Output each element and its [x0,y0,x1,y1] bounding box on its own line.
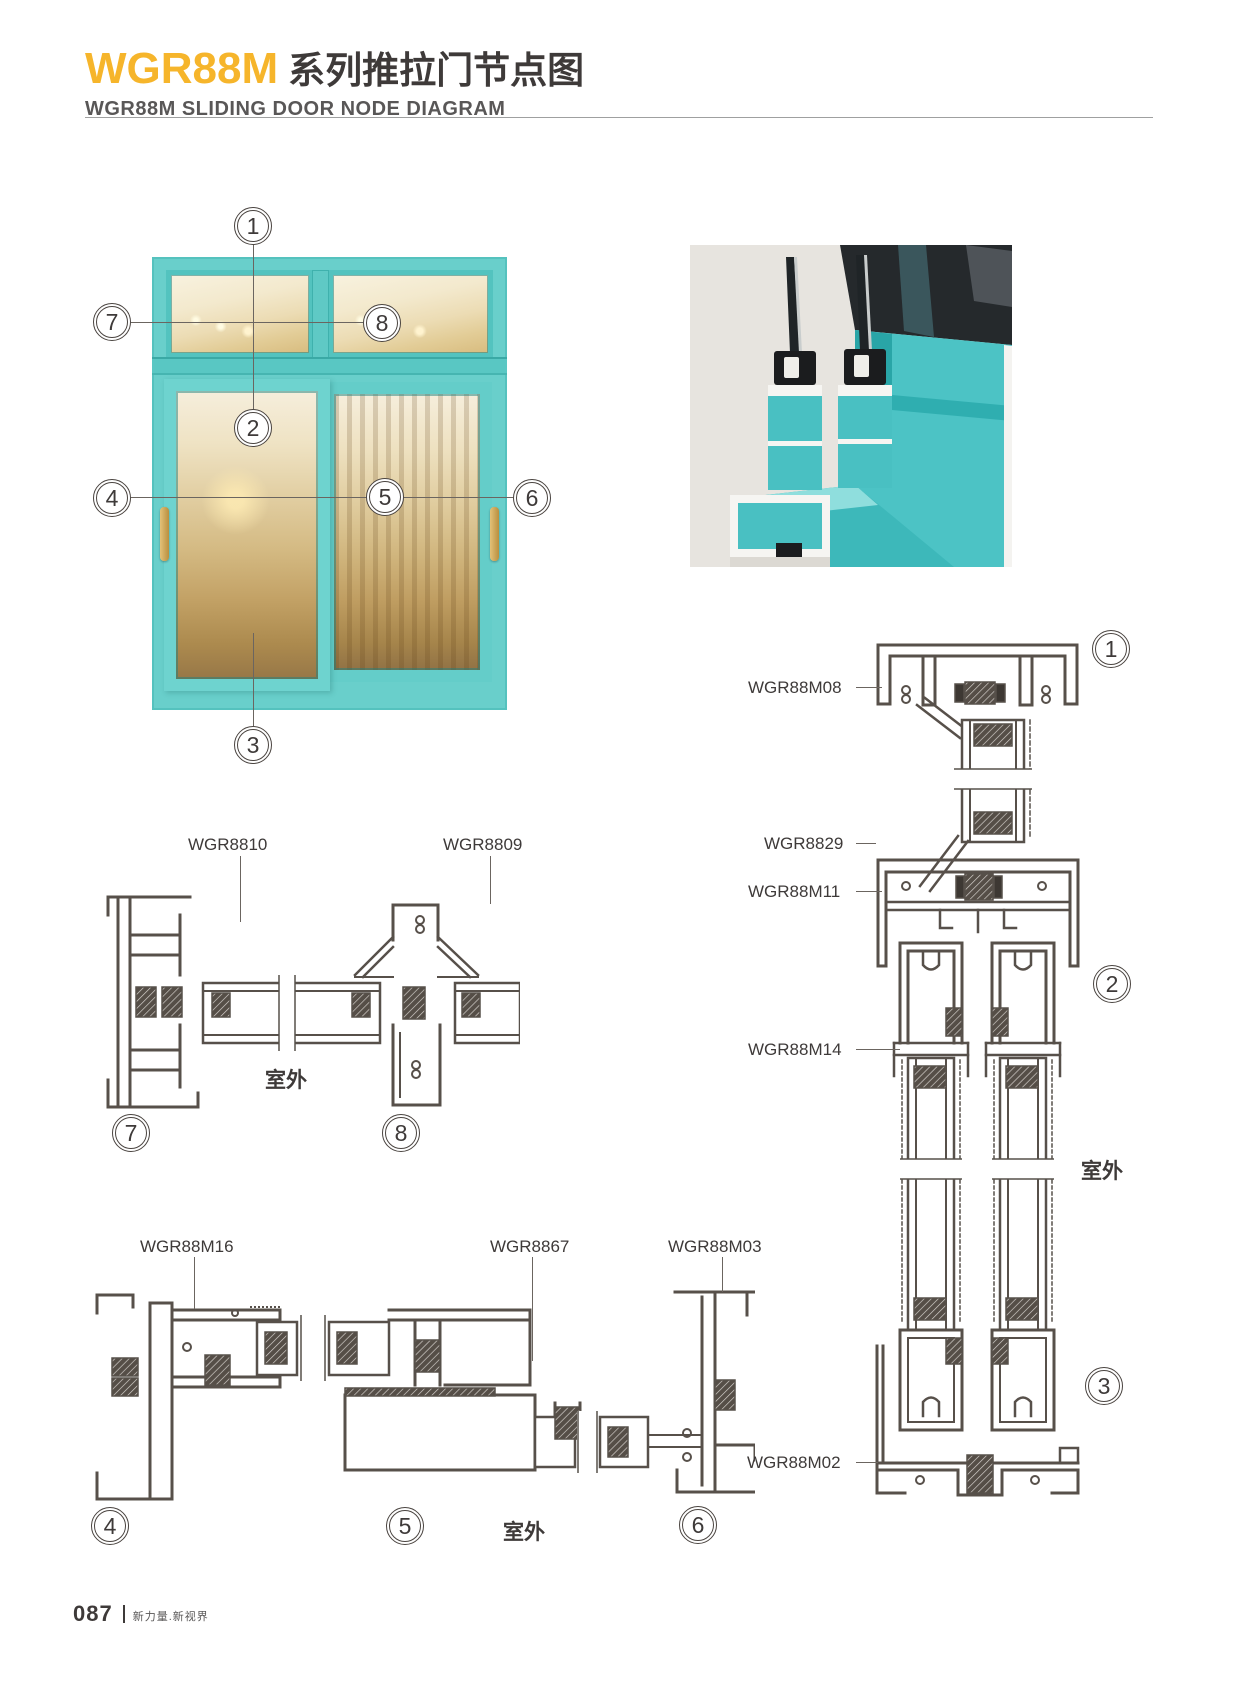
callout-3: 3 [234,726,272,764]
part-label: WGR88M02 [747,1454,841,1471]
section-drawing-4-5-6 [75,1285,755,1510]
leader-line [856,843,876,844]
leader-line [131,322,363,323]
callout-4-detail: 4 [91,1507,129,1545]
transom-pane-left [166,270,314,358]
callout-number: 4 [104,1513,117,1540]
callout-4: 4 [93,479,131,517]
leader-line [131,497,513,498]
leader-line [856,687,882,688]
leader-line [490,856,491,904]
part-label: WGR88M08 [748,679,842,696]
callout-number: 5 [379,484,392,511]
callout-5: 5 [366,478,404,516]
callout-8-detail: 8 [382,1114,420,1152]
callout-number: 3 [1098,1373,1111,1400]
section-drawing-7-8 [100,875,520,1165]
callout-number: 2 [247,415,260,442]
part-label: WGR88M11 [748,883,840,900]
page-footer: 087 新力量.新视界 [73,1601,209,1627]
sliding-door-illustration [152,257,507,710]
callout-8: 8 [363,304,401,342]
callout-3-detail: 3 [1085,1367,1123,1405]
callout-number: 1 [247,213,260,240]
footer-slogan: 新力量.新视界 [133,1605,209,1624]
part-label: WGR88M14 [748,1041,842,1058]
callout-number: 4 [106,485,119,512]
profile-3d-render [690,245,1012,567]
callout-number: 5 [399,1513,412,1540]
door-handle-left [160,507,169,561]
footer-divider [123,1605,125,1623]
leader-line [240,856,241,922]
callout-1-detail: 1 [1092,630,1130,668]
callout-1: 1 [234,207,272,245]
page-header: WGR88M系列推拉门节点图 WGR88M SLIDING DOOR NODE … [85,40,1155,121]
callout-number: 3 [247,732,260,759]
callout-6-detail: 6 [679,1506,717,1544]
callout-6: 6 [513,479,551,517]
part-label: WGR88M03 [668,1238,762,1255]
transom-pane-right [328,270,493,358]
callout-number: 8 [376,310,389,337]
page-number: 087 [73,1601,113,1627]
callout-5-detail: 5 [386,1507,424,1545]
callout-7-detail: 7 [112,1114,150,1152]
page-title: WGR88M系列推拉门节点图 [85,40,1155,94]
callout-number: 6 [526,485,539,512]
part-label: WGR8867 [490,1238,569,1255]
callout-7: 7 [93,303,131,341]
header-divider [85,117,1153,118]
leader-line [722,1257,723,1292]
transom-mullion [312,270,329,358]
catalog-page: WGR88M系列推拉门节点图 WGR88M SLIDING DOOR NODE … [0,0,1239,1681]
leader-line [532,1257,533,1361]
callout-number: 7 [125,1120,138,1147]
leader-line [856,891,882,892]
callout-number: 8 [395,1120,408,1147]
callout-number: 2 [1106,971,1119,998]
outdoor-label: 室外 [265,1064,307,1094]
title-chinese: 系列推拉门节点图 [288,50,584,91]
part-label: WGR8829 [764,835,843,852]
leader-line [194,1257,195,1309]
callout-number: 6 [692,1512,705,1539]
leader-line [856,1462,878,1463]
leader-line [856,1049,900,1050]
door-handle-right [490,507,499,561]
callout-2: 2 [234,409,272,447]
part-label: WGR8809 [443,836,522,853]
part-label: WGR88M16 [140,1238,234,1255]
callout-number: 1 [1105,636,1118,663]
transom-bar [152,357,507,375]
part-label: WGR8810 [188,836,267,853]
outdoor-label: 室外 [1081,1155,1123,1185]
leader-line [253,245,254,409]
callout-number: 7 [106,309,119,336]
sliding-sash-right [322,382,492,682]
leader-line [253,633,254,726]
outdoor-label: 室外 [503,1516,545,1546]
callout-2-detail: 2 [1093,965,1131,1003]
series-code: WGR88M [85,44,278,93]
